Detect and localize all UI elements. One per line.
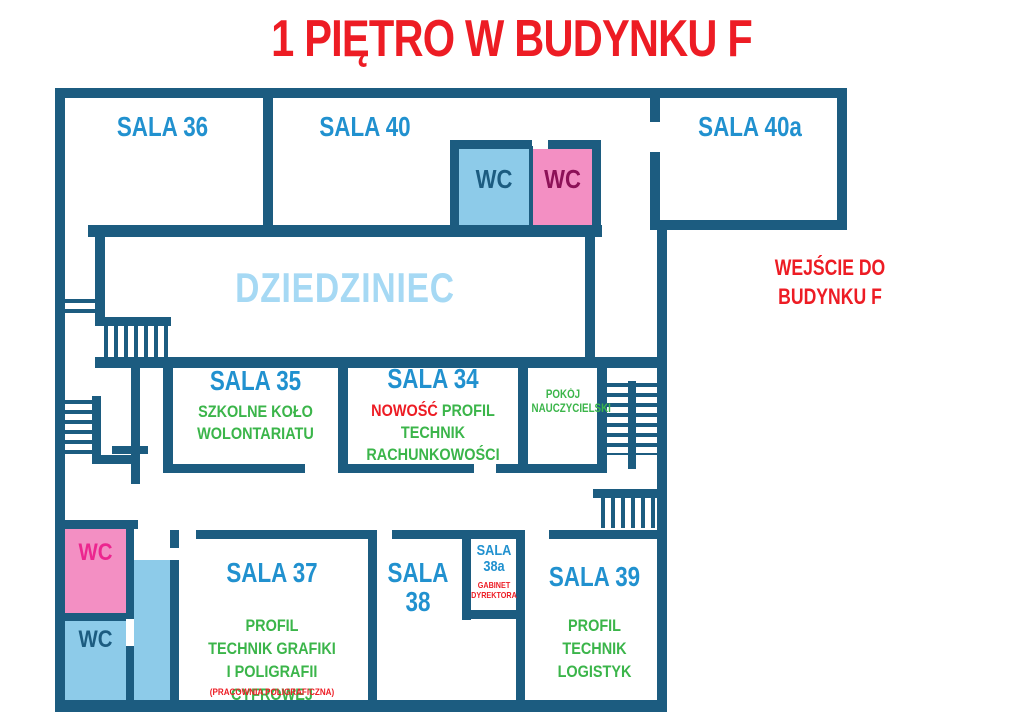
- wall: [112, 446, 148, 454]
- room-sala35-label: SALA 35: [190, 366, 322, 395]
- sala38a-line-1: SALA: [473, 543, 516, 559]
- stairs-left: [63, 400, 93, 460]
- wall: [837, 88, 847, 230]
- wall: [462, 530, 524, 539]
- room-sala38-label: SALA 38: [378, 558, 458, 617]
- sala34-badge: NOWOŚĆ: [371, 401, 438, 420]
- sala39-line-1: PROFIL: [533, 614, 656, 637]
- room-sala34-profile-line1: NOWOŚĆ PROFIL: [361, 400, 506, 422]
- room-sala36-label: SALA 36: [81, 112, 245, 141]
- room-sala34-label: SALA 34: [365, 364, 501, 393]
- room-sala38a-note: GABINET DYREKTORA: [471, 580, 517, 600]
- sala34-profile-word: PROFIL: [442, 401, 495, 420]
- wall: [163, 368, 173, 473]
- page-title-text: 1 PIĘTRO W BUDYNKU F: [272, 12, 753, 67]
- sala35-line-1: SZKOLNE KOŁO: [185, 401, 325, 423]
- entrance-label: WEJŚCIE DO BUDYNKU F: [754, 253, 906, 311]
- room-sala37-label: SALA 37: [196, 558, 348, 587]
- room-sala40a-label: SALA 40a: [674, 112, 826, 141]
- wall: [92, 396, 101, 464]
- room-sala39-label: SALA 39: [541, 562, 649, 591]
- wall: [529, 146, 533, 228]
- wall: [170, 530, 179, 548]
- page-title: 1 PIĘTRO W BUDYNKU F: [0, 12, 1024, 67]
- wc-bottom-pink-label: WC: [70, 540, 122, 565]
- wall: [338, 368, 348, 473]
- wc-top-pink-label: WC: [537, 166, 587, 193]
- wall: [196, 530, 370, 539]
- sala38a-note-2: DYREKTORA: [471, 590, 517, 600]
- room-pokoj-nauczycielski-label: POKÓJ NAUCZYCIELSKI: [532, 388, 595, 416]
- courtyard-label: DZIEDZINIEC: [153, 266, 537, 310]
- wall: [450, 140, 459, 228]
- wall: [88, 225, 602, 237]
- wall: [55, 88, 847, 98]
- wall: [126, 646, 134, 712]
- sala39-line-2: TECHNIK LOGISTYK: [533, 637, 656, 683]
- sala35-line-2: WOLONTARIATU: [185, 423, 325, 445]
- room-sala37-note: (PRACOWNIA POLIGRAFICZNA): [187, 688, 357, 698]
- wall: [650, 152, 660, 222]
- wc-top-blue-label: WC: [464, 166, 524, 193]
- wall: [55, 700, 667, 712]
- floor-plan: 1 PIĘTRO W BUDYNKU F: [0, 0, 1024, 721]
- stairs-right-flight-1: [601, 383, 628, 455]
- sala37-line-2: TECHNIK GRAFIKI: [187, 637, 357, 660]
- wall: [392, 530, 464, 539]
- wall: [592, 140, 601, 237]
- entrance-line-1: WEJŚCIE DO: [754, 253, 906, 282]
- room-sala34-profile-line2: TECHNIK RACHUNKOWOŚCI: [357, 422, 510, 466]
- stairs-right-flight-2: [635, 383, 662, 455]
- wall: [593, 489, 667, 498]
- room-sala35-subtitle: SZKOLNE KOŁO WOLONTARIATU: [185, 401, 325, 445]
- wall: [95, 317, 171, 326]
- wall: [462, 610, 525, 619]
- pokoj-line-2: NAUCZYCIELSKI: [532, 402, 595, 416]
- wall: [95, 225, 105, 325]
- wc-bottom-blue-label: WC: [70, 627, 122, 652]
- sala38a-note-1: GABINET: [471, 580, 517, 590]
- wall: [462, 530, 471, 620]
- wall: [170, 560, 179, 712]
- wall: [585, 225, 595, 367]
- entrance-line-2: BUDYNKU F: [754, 282, 906, 311]
- room-sala39-profile: PROFIL TECHNIK LOGISTYK: [533, 614, 656, 683]
- wall: [650, 220, 847, 230]
- wall: [263, 88, 273, 227]
- wall: [126, 529, 134, 619]
- sala37-line-3: I POLIGRAFII CYFROWEJ: [187, 660, 357, 706]
- wall: [650, 88, 660, 122]
- wall: [58, 520, 138, 529]
- stairs-right-lower: [601, 498, 663, 528]
- sala37-line-1: PROFIL: [187, 614, 357, 637]
- wall: [131, 368, 140, 484]
- stair-corridor-area: [134, 560, 170, 710]
- sala38a-line-2: 38a: [473, 559, 516, 575]
- wall: [549, 530, 658, 539]
- room-sala40-label: SALA 40: [289, 112, 441, 141]
- wall: [450, 140, 532, 149]
- wall: [516, 530, 525, 712]
- wall: [173, 464, 305, 473]
- wall: [528, 464, 607, 473]
- room-sala38a-label: SALA 38a: [473, 543, 516, 575]
- wall: [657, 222, 667, 712]
- wall: [548, 140, 596, 149]
- wall: [628, 381, 636, 469]
- wall: [368, 530, 377, 712]
- stairs-courtyard: [104, 326, 168, 357]
- wall: [62, 613, 126, 621]
- wall: [518, 368, 528, 473]
- stairs-left-small: [63, 299, 95, 316]
- pokoj-line-1: POKÓJ: [532, 388, 595, 402]
